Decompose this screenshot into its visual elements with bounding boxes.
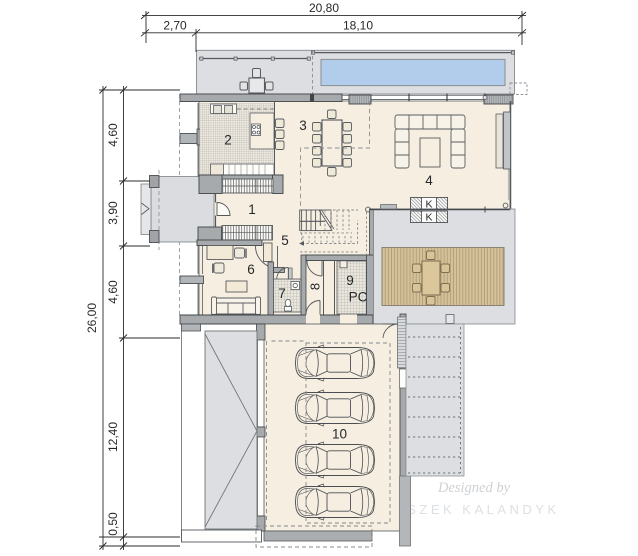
svg-text:12,40: 12,40 bbox=[106, 422, 120, 452]
svg-text:4,60: 4,60 bbox=[106, 280, 120, 304]
svg-text:1: 1 bbox=[248, 202, 256, 217]
svg-text:4: 4 bbox=[425, 173, 433, 188]
svg-text:2,70: 2,70 bbox=[163, 19, 187, 33]
svg-text:3: 3 bbox=[299, 118, 307, 133]
svg-text:0,50: 0,50 bbox=[106, 512, 120, 536]
svg-text:7: 7 bbox=[278, 286, 286, 301]
svg-text:6: 6 bbox=[247, 262, 255, 277]
svg-text:10: 10 bbox=[332, 427, 347, 442]
svg-text:9: 9 bbox=[346, 273, 354, 288]
svg-text:2: 2 bbox=[224, 133, 232, 148]
svg-text:Designed by: Designed by bbox=[437, 480, 511, 496]
svg-text:K: K bbox=[425, 212, 432, 224]
svg-text:18,10: 18,10 bbox=[343, 19, 373, 33]
svg-text:3,90: 3,90 bbox=[106, 201, 120, 225]
svg-text:5: 5 bbox=[281, 233, 289, 248]
svg-text:20,80: 20,80 bbox=[309, 1, 339, 15]
svg-text:4,60: 4,60 bbox=[106, 123, 120, 147]
svg-text:8: 8 bbox=[308, 283, 323, 290]
svg-text:PC: PC bbox=[349, 290, 368, 305]
svg-text:26,00: 26,00 bbox=[85, 303, 99, 333]
svg-text:K: K bbox=[425, 199, 432, 211]
